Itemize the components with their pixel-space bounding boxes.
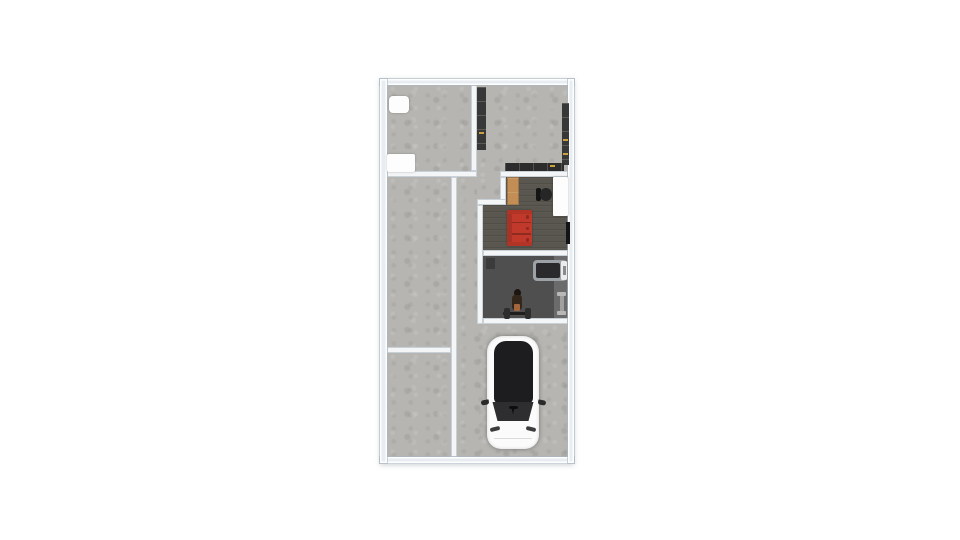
treadmill-belt [536,263,560,279]
office-chair-seat[interactable] [540,188,552,202]
floor-left-lower-room [387,353,451,457]
bench-cushion [514,304,521,311]
floor-hallway [457,177,477,325]
wall-gym-bottom [483,318,568,324]
sofa-armrest-top [507,210,532,214]
floor-left-upper-room [387,177,451,348]
floor-top-right-room [477,85,568,171]
wardrobe-handle [479,132,485,134]
wardrobe[interactable] [477,87,486,150]
wall-study-gym-divider [483,250,568,256]
sofa-backrest [507,210,513,247]
dumbbell-rack-bottom [557,311,566,315]
sofa-armrest-bottom [507,242,532,246]
wall-left-column-divider [451,177,457,457]
sofa-seam-2 [512,233,531,235]
dumbbell-rack-post[interactable] [560,296,564,312]
counter-handle [550,165,555,167]
page-background [0,0,960,540]
white-appliance-large[interactable] [387,154,415,172]
car-glass-roof [494,341,533,404]
desk-white[interactable] [553,177,568,216]
shelf-unit-right[interactable] [562,103,569,165]
wall-top-rooms-divider [471,85,477,171]
sofa-knob-2 [526,227,530,231]
shelf-handle-2 [563,153,568,155]
wall-outer-top [380,79,574,86]
wall-hallway-right [477,205,483,325]
sofa-seam-1 [512,222,531,224]
car-bumper-line [494,438,532,440]
barbell-plate-left [504,308,510,319]
sofa-knob-1 [526,215,530,219]
white-appliance-small[interactable] [389,96,409,113]
barbell-plate-right [525,308,531,319]
gym-corner-mat[interactable] [486,258,495,269]
kitchen-counter[interactable] [505,163,564,172]
sofa-knob-3 [526,238,530,242]
wall-tv[interactable] [566,222,570,244]
wall-left-rooms-divider [387,347,451,353]
floorplan [380,79,574,464]
wall-outer-left [380,79,387,464]
treadmill-console-detail [563,266,566,275]
tall-cabinet-tan[interactable] [507,177,520,205]
shelf-handle-1 [563,139,568,141]
wall-outer-bottom [380,457,574,464]
